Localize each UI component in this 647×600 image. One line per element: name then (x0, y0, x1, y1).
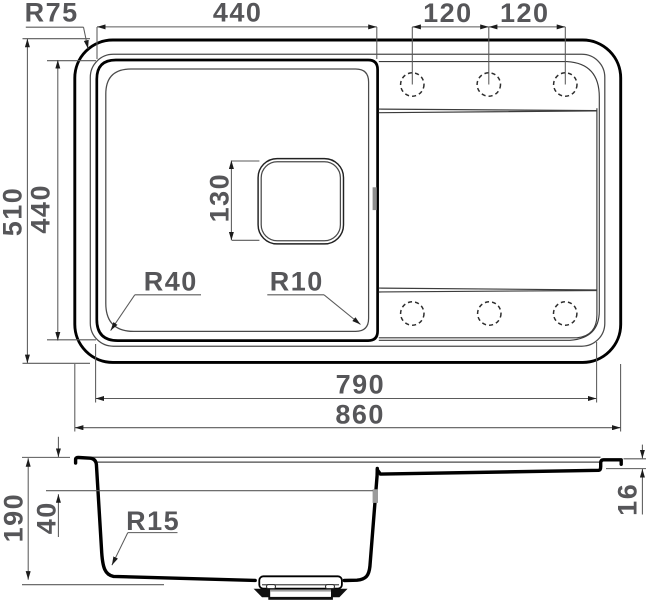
svg-text:510: 510 (0, 187, 27, 237)
svg-text:16: 16 (612, 483, 642, 516)
svg-text:790: 790 (336, 369, 386, 399)
svg-text:860: 860 (335, 399, 385, 429)
svg-text:120: 120 (423, 0, 473, 28)
svg-text:130: 130 (204, 173, 234, 223)
svg-text:R40: R40 (144, 267, 198, 297)
svg-text:R10: R10 (270, 267, 324, 297)
svg-text:40: 40 (32, 501, 62, 534)
svg-text:R15: R15 (126, 506, 180, 536)
svg-text:440: 440 (26, 184, 56, 234)
svg-text:440: 440 (213, 0, 263, 27)
svg-text:190: 190 (0, 493, 28, 543)
svg-text:R75: R75 (25, 0, 79, 28)
svg-text:120: 120 (500, 0, 550, 28)
